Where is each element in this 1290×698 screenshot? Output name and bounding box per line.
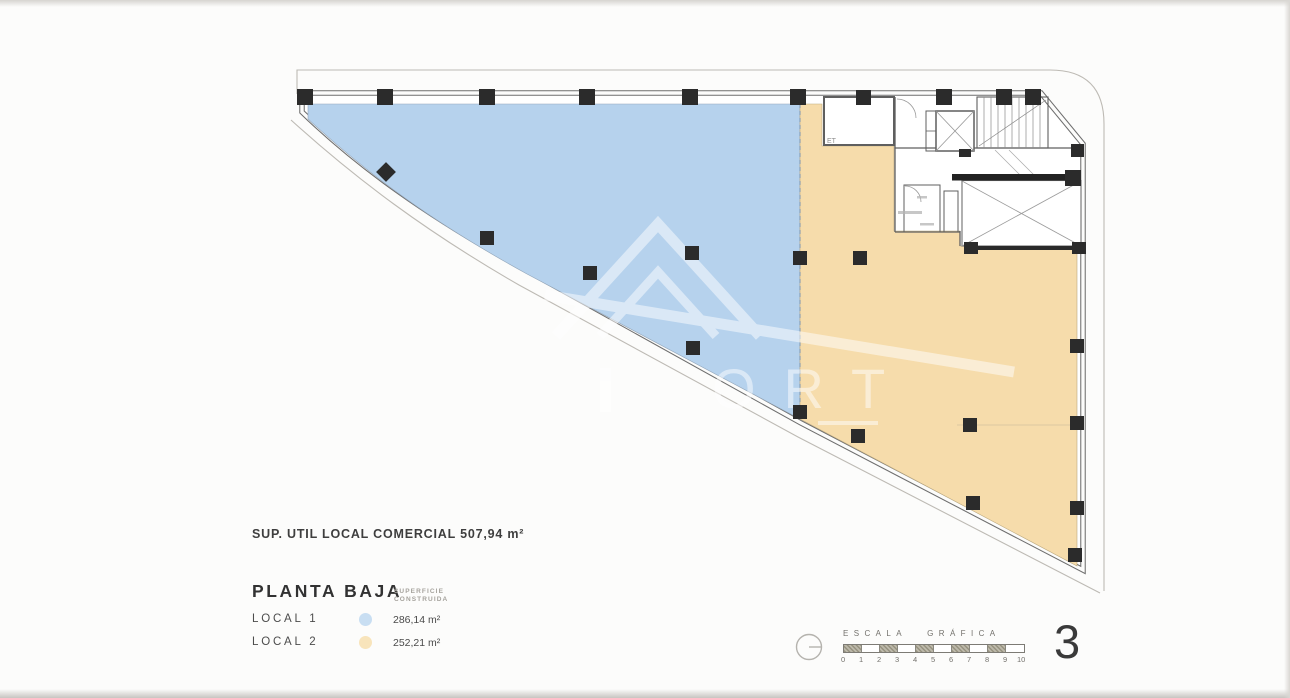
legend-label: LOCAL 1 (252, 613, 318, 625)
legend-column-header: SUPERFICIE CONSTRUIDA (394, 588, 448, 604)
legend-value: 252,21 m² (393, 637, 440, 649)
legend-heading: PLANTA BAJA (252, 581, 402, 602)
usable-area-label: SUP. UTIL LOCAL COMERCIAL 507,94 m² (252, 527, 524, 541)
compass-icon (795, 633, 825, 663)
page-number: 3 (1054, 614, 1079, 669)
bearing-wall (952, 174, 1081, 181)
watermark-underline-fragment (818, 421, 878, 425)
scale-tick-labels: 0 1 2 3 4 5 6 7 8 9 10 (843, 655, 1027, 665)
legend-color-swatch-local2 (359, 636, 372, 649)
scale-label: ESCALA GRÁFICA (843, 629, 1025, 638)
watermark-letter-fragment (600, 368, 611, 412)
legend-label: LOCAL 2 (252, 636, 318, 648)
floor-plan-drawing: ORT (0, 0, 1290, 698)
legend-value: 286,14 m² (393, 614, 440, 626)
watermark-text: ORT (712, 357, 913, 420)
room-label-et: ET (827, 138, 837, 145)
scale-bar (843, 644, 1025, 653)
bearing-wall-lower (968, 246, 1076, 250)
floor-plan-sheet: ORT (0, 0, 1290, 698)
legend-color-swatch-local1 (359, 613, 372, 626)
